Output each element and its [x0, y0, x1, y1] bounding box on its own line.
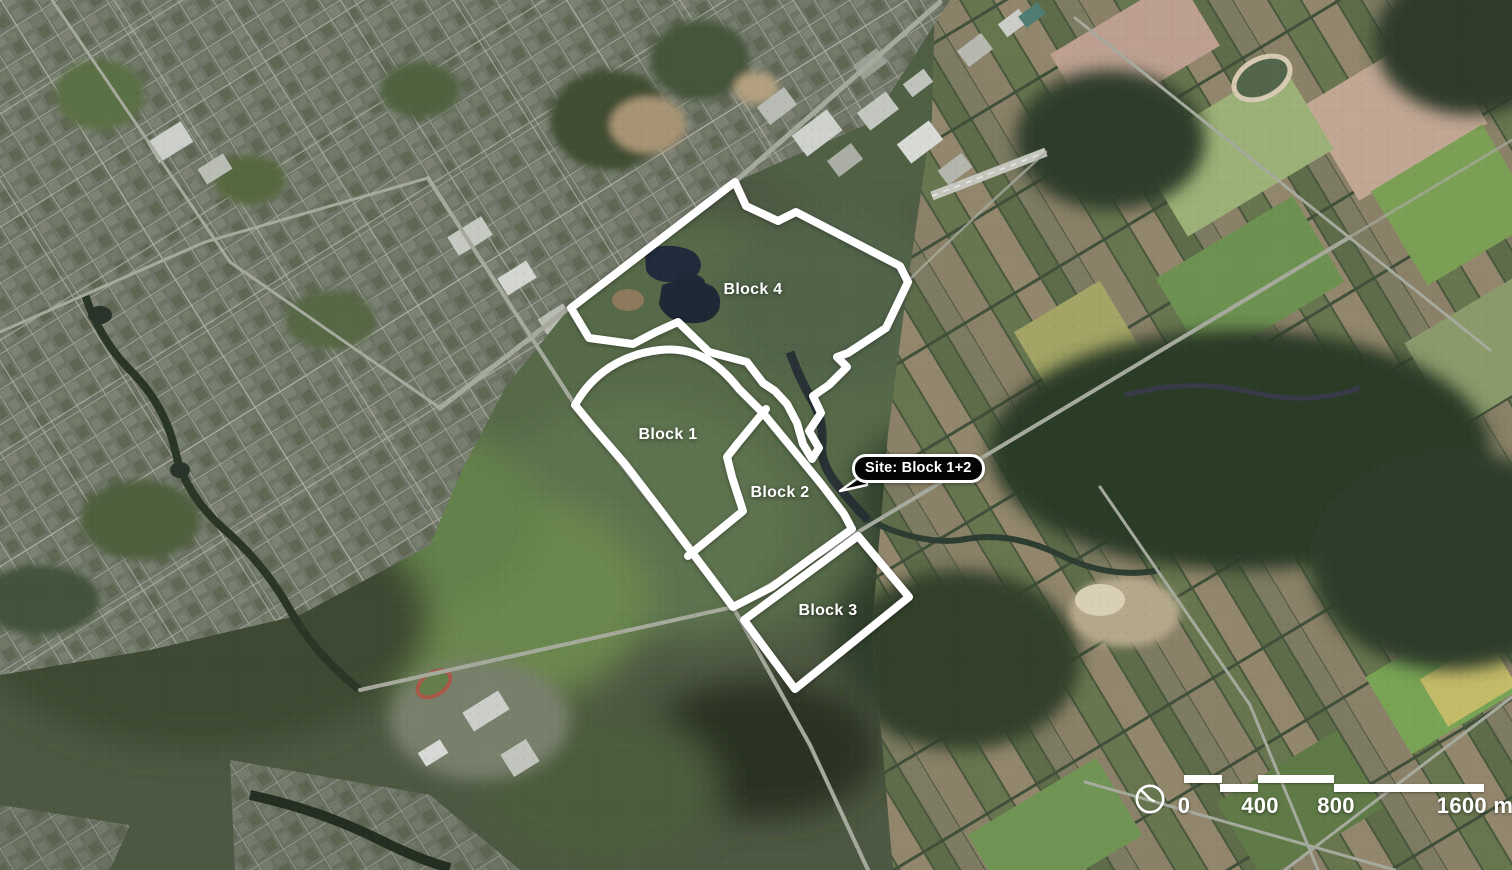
north-arrow-icon: [1133, 782, 1167, 816]
scale-tick-800: 800: [1317, 793, 1355, 819]
block-2-label: Block 2: [750, 484, 809, 502]
scale-tick-400: 400: [1241, 793, 1279, 819]
scale-bar-segment: [1334, 784, 1484, 792]
scale-bar-segment: [1258, 775, 1334, 783]
block-outlines: [0, 0, 1512, 870]
block-4-label: Block 4: [723, 281, 782, 299]
block-1-label: Block 1: [638, 426, 697, 444]
block-3-label: Block 3: [798, 602, 857, 620]
block-1-2-divider: [688, 409, 766, 556]
site-callout: Site: Block 1+2: [852, 454, 985, 483]
map-canvas: Block 1 Block 2 Block 3 Block 4 Site: Bl…: [0, 0, 1512, 870]
scale-tick-0: 0: [1178, 793, 1191, 819]
block-4-outline: [571, 182, 908, 459]
scale-bar-segment: [1184, 775, 1222, 783]
scale-bar-segment: [1220, 784, 1258, 792]
site-callout-label: Site: Block 1+2: [865, 460, 972, 476]
scale-tick-1600: 1600 m: [1437, 793, 1512, 819]
